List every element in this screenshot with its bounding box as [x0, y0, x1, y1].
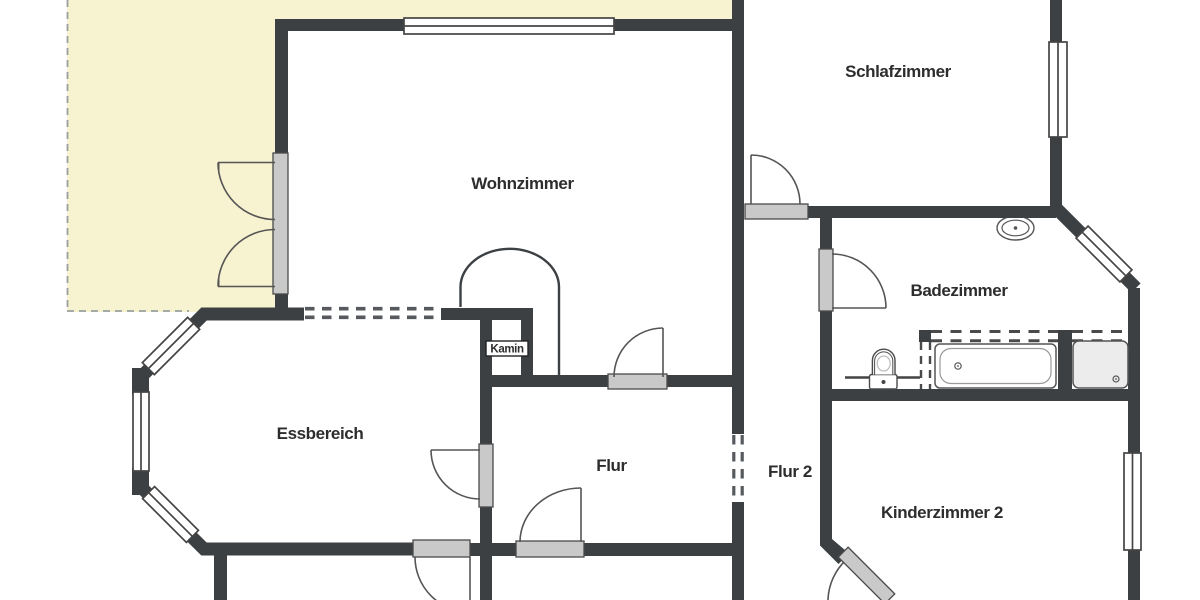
svg-text:Badezimmer: Badezimmer: [910, 281, 1008, 300]
svg-text:Kinderzimmer 2: Kinderzimmer 2: [881, 503, 1003, 522]
svg-text:Kamin: Kamin: [490, 344, 524, 356]
svg-text:Flur 2: Flur 2: [768, 462, 812, 481]
svg-text:Flur: Flur: [596, 456, 627, 475]
svg-text:Wohnzimmer: Wohnzimmer: [471, 174, 574, 193]
svg-text:Schlafzimmer: Schlafzimmer: [845, 62, 952, 81]
svg-text:Essbereich: Essbereich: [277, 424, 364, 443]
